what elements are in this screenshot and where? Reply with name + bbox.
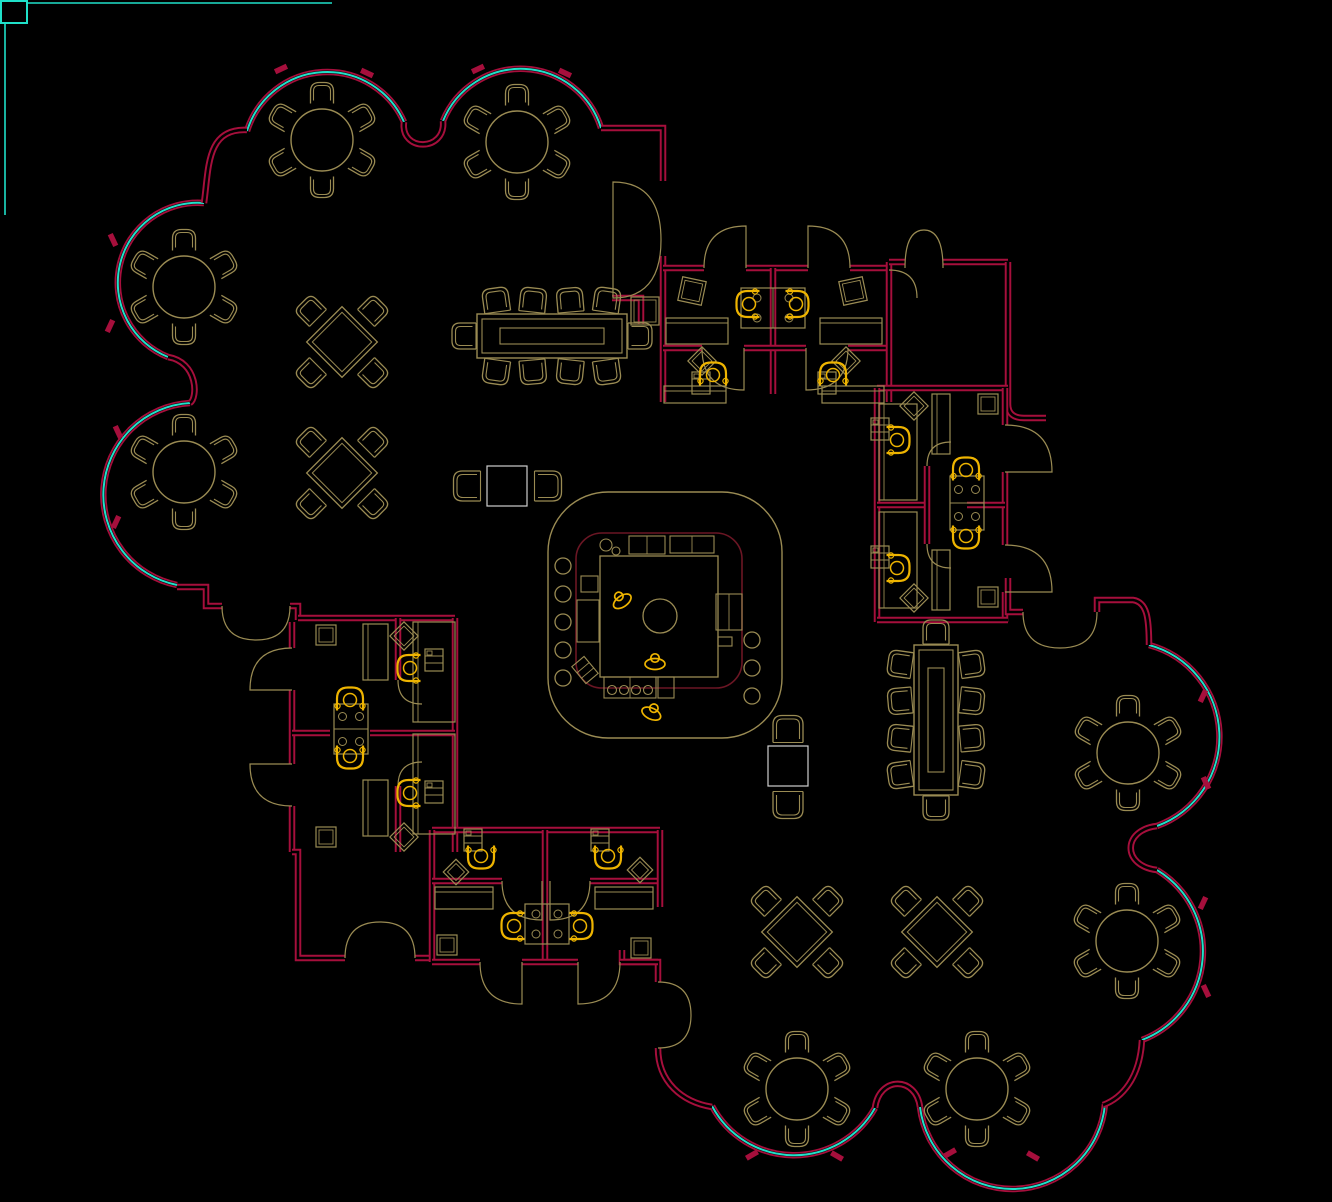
diamond-table-4[interactable] <box>263 263 421 421</box>
task-chair[interactable] <box>502 911 525 941</box>
dining-chair[interactable] <box>786 1032 809 1053</box>
door-swing[interactable] <box>658 1015 691 1048</box>
diamond-chair[interactable] <box>294 294 327 327</box>
dining-chair[interactable] <box>1153 949 1183 979</box>
glass-wall-arc[interactable] <box>1142 870 1203 1040</box>
task-chair[interactable] <box>951 526 981 549</box>
door-swing[interactable] <box>345 922 380 958</box>
door-swing[interactable] <box>905 230 924 268</box>
glass-wall-arc[interactable] <box>118 203 204 357</box>
dining-chair[interactable] <box>543 150 573 180</box>
lounge-chair[interactable] <box>773 792 803 819</box>
dining-chair[interactable] <box>1003 1050 1033 1080</box>
dining-chair[interactable] <box>1071 949 1101 979</box>
door-swing[interactable] <box>250 648 292 690</box>
conference-chair[interactable] <box>887 724 914 752</box>
conference-chair[interactable] <box>519 287 547 314</box>
round-table-6[interactable] <box>128 415 239 530</box>
task-chair[interactable] <box>570 911 593 941</box>
round-table-6[interactable] <box>921 1032 1032 1147</box>
task-chair[interactable] <box>737 289 760 319</box>
door-swing[interactable] <box>808 226 850 268</box>
desk[interactable] <box>932 550 950 610</box>
door-swing[interactable] <box>924 230 943 268</box>
mullion-tick <box>274 64 288 74</box>
wall-segment[interactable] <box>292 852 345 958</box>
round-table-6[interactable] <box>1071 884 1182 999</box>
mullion-tick <box>113 425 123 439</box>
mullion-tick <box>1026 1150 1040 1161</box>
counter-stool[interactable] <box>744 632 760 648</box>
mullion-tick <box>1198 689 1208 703</box>
file-cabinet[interactable] <box>425 781 443 803</box>
side-table[interactable] <box>631 938 651 958</box>
dining-chair[interactable] <box>128 295 158 325</box>
conference-chair[interactable] <box>481 358 510 385</box>
diamond-table-4[interactable] <box>718 853 876 1011</box>
dining-chair[interactable] <box>266 101 296 131</box>
lounge-table[interactable] <box>487 466 527 506</box>
desk[interactable] <box>413 622 455 722</box>
desk[interactable] <box>413 734 455 834</box>
workstation[interactable] <box>950 476 984 530</box>
dining-chair[interactable] <box>823 1050 853 1080</box>
side-table[interactable] <box>839 277 867 305</box>
kitchen-equipment <box>629 536 665 554</box>
dining-chair[interactable] <box>311 83 334 104</box>
person-figure <box>645 654 665 670</box>
diamond-chair[interactable] <box>813 948 846 981</box>
kitchen-outer-counter[interactable] <box>548 492 782 738</box>
side-table[interactable] <box>316 625 336 645</box>
diamond-chair[interactable] <box>889 948 922 981</box>
mullion-tick <box>105 319 115 333</box>
round-table-6[interactable] <box>461 85 572 200</box>
conference-chair[interactable] <box>519 359 547 385</box>
dining-chair[interactable] <box>173 509 196 530</box>
door-swing[interactable] <box>222 606 256 640</box>
dining-chair[interactable] <box>966 1126 989 1147</box>
kitchen-burner <box>612 547 620 555</box>
person-figure <box>608 587 633 611</box>
dining-chair[interactable] <box>741 1050 771 1080</box>
mullion-tick <box>830 1150 844 1161</box>
task-chair[interactable] <box>887 425 910 455</box>
glass-wall-arc[interactable] <box>443 69 601 128</box>
cad-viewport[interactable] <box>0 0 1332 1202</box>
dining-chair[interactable] <box>506 85 529 106</box>
frame-corner-square <box>1 1 27 23</box>
mullions-layer <box>105 64 1211 1162</box>
dining-chair[interactable] <box>210 480 240 510</box>
task-chair[interactable] <box>593 846 623 869</box>
side-table[interactable] <box>678 277 706 305</box>
diamond-chair[interactable] <box>294 489 327 522</box>
kitchen-burner <box>608 686 617 695</box>
dining-chair[interactable] <box>210 248 240 278</box>
door-swing[interactable] <box>613 240 661 298</box>
lounge-chair[interactable] <box>773 716 803 743</box>
kitchen-equipment <box>718 637 732 646</box>
diamond-chair[interactable] <box>813 884 846 917</box>
dining-chair[interactable] <box>966 1032 989 1053</box>
conference-chair[interactable] <box>959 724 985 752</box>
desk[interactable] <box>820 318 882 344</box>
kitchen-burner <box>600 539 612 551</box>
diamond-side-table[interactable] <box>900 392 928 420</box>
mullion-tick <box>1201 984 1211 998</box>
conference-chair[interactable] <box>628 323 652 349</box>
wall-segment[interactable] <box>658 1048 712 1107</box>
diamond-chair[interactable] <box>358 358 391 391</box>
wall-segment[interactable] <box>290 606 298 620</box>
counter-stool[interactable] <box>555 642 571 658</box>
mullion-tick <box>943 1147 957 1158</box>
wall-pocket[interactable] <box>1131 826 1157 870</box>
wall-segment[interactable] <box>1008 578 1023 612</box>
task-chair[interactable] <box>887 553 910 583</box>
kitchen-island <box>548 492 782 738</box>
file-cabinet[interactable] <box>425 649 443 671</box>
round-table-6[interactable] <box>741 1032 852 1147</box>
conference-chair[interactable] <box>959 687 986 715</box>
door-swing[interactable] <box>927 544 951 568</box>
wall-segment[interactable] <box>1097 600 1149 645</box>
lounge-table[interactable] <box>768 746 808 786</box>
dining-chair[interactable] <box>210 295 240 325</box>
wall-pocket[interactable] <box>875 1084 920 1108</box>
door-swing[interactable] <box>889 270 917 298</box>
dining-chair[interactable] <box>461 103 491 133</box>
kitchen-burner <box>620 686 629 695</box>
conference-chair[interactable] <box>886 760 913 789</box>
mullion-tick <box>471 64 485 74</box>
wall-segment[interactable] <box>177 587 222 606</box>
diamond-chair[interactable] <box>953 884 986 917</box>
task-chair[interactable] <box>466 846 496 869</box>
mullion-tick <box>111 515 121 529</box>
task-chair[interactable] <box>335 746 365 769</box>
round-table-6[interactable] <box>266 83 377 198</box>
person-figure <box>640 700 665 723</box>
round-table-6[interactable] <box>128 230 239 345</box>
wall-segment[interactable] <box>1008 262 1046 418</box>
desk[interactable] <box>932 394 950 454</box>
workstation[interactable] <box>525 904 569 944</box>
mullion-tick <box>1198 896 1208 910</box>
conference-chair[interactable] <box>923 620 949 644</box>
wall-pocket[interactable] <box>404 121 443 144</box>
diamond-chair[interactable] <box>294 358 327 391</box>
kitchen-equipment <box>577 600 599 642</box>
desk[interactable] <box>363 624 388 680</box>
conference-chair[interactable] <box>556 287 584 313</box>
dining-chair[interactable] <box>1117 696 1140 717</box>
desk[interactable] <box>595 887 653 909</box>
side-table[interactable] <box>316 827 336 847</box>
dining-chair[interactable] <box>173 415 196 436</box>
conference-chair[interactable] <box>958 649 985 678</box>
conference-table-10[interactable] <box>886 620 985 820</box>
glass-wall-arc[interactable] <box>1149 645 1219 826</box>
door-swing[interactable] <box>704 226 746 268</box>
dining-chair[interactable] <box>921 1050 951 1080</box>
dining-chair[interactable] <box>1071 902 1101 932</box>
door-swing[interactable] <box>1023 612 1060 648</box>
wall-segment[interactable] <box>204 130 247 203</box>
dining-chair[interactable] <box>173 230 196 251</box>
door-swing[interactable] <box>613 182 661 240</box>
round-table-6[interactable] <box>1072 696 1183 811</box>
dining-chair[interactable] <box>266 148 296 178</box>
workstation[interactable] <box>741 288 805 328</box>
wall-pocket[interactable] <box>168 357 195 403</box>
dining-chair[interactable] <box>348 101 378 131</box>
glass-wall-arc[interactable] <box>920 1104 1105 1189</box>
diamond-table-4[interactable] <box>263 394 421 552</box>
dining-chair[interactable] <box>1116 884 1139 905</box>
diamond-chair[interactable] <box>749 948 782 981</box>
dining-chair[interactable] <box>741 1097 771 1127</box>
kitchen-equipment <box>716 594 742 630</box>
kitchen-burner <box>632 686 641 695</box>
dining-chair[interactable] <box>823 1097 853 1127</box>
dining-chair[interactable] <box>128 433 158 463</box>
dining-chair[interactable] <box>461 150 491 180</box>
dining-chair[interactable] <box>1154 714 1184 744</box>
diamond-side-table[interactable] <box>390 622 418 650</box>
conference-chair[interactable] <box>887 687 913 715</box>
counter-stool[interactable] <box>555 586 571 602</box>
counter-stool[interactable] <box>555 670 571 686</box>
diamond-chair[interactable] <box>953 948 986 981</box>
dining-chair[interactable] <box>173 324 196 345</box>
kitchen-burner <box>644 686 653 695</box>
glass-wall-arc[interactable] <box>712 1106 875 1155</box>
conference-chair[interactable] <box>886 649 913 678</box>
counter-stool[interactable] <box>555 614 571 630</box>
counter-stool[interactable] <box>744 688 760 704</box>
diamond-side-table[interactable] <box>390 823 418 851</box>
dining-chair[interactable] <box>1072 714 1102 744</box>
diamond-chair[interactable] <box>358 425 391 458</box>
conference-chair[interactable] <box>958 760 985 789</box>
dining-chair[interactable] <box>128 480 158 510</box>
diamond-chair[interactable] <box>749 884 782 917</box>
diamond-chair[interactable] <box>294 425 327 458</box>
dining-chair[interactable] <box>128 248 158 278</box>
dining-chair[interactable] <box>210 433 240 463</box>
diamond-table-4[interactable] <box>858 853 1016 1011</box>
dining-chair[interactable] <box>543 103 573 133</box>
mullion-tick <box>108 233 118 247</box>
conference-chair[interactable] <box>556 359 584 386</box>
kitchen-equipment <box>670 536 714 553</box>
lounge-chair[interactable] <box>454 471 481 501</box>
dining-chair[interactable] <box>1153 902 1183 932</box>
conference-chair[interactable] <box>592 358 621 385</box>
dining-chair[interactable] <box>1072 761 1102 791</box>
mullion-tick <box>745 1149 759 1160</box>
furniture-layer <box>128 83 1183 1147</box>
dining-chair[interactable] <box>506 179 529 200</box>
task-chair[interactable] <box>951 458 981 481</box>
side-table[interactable] <box>978 394 998 414</box>
side-table[interactable] <box>437 935 457 955</box>
dining-chair[interactable] <box>311 177 334 198</box>
task-chair[interactable] <box>335 688 365 711</box>
conference-chair[interactable] <box>481 286 510 313</box>
dining-chair[interactable] <box>1154 761 1184 791</box>
door-swing[interactable] <box>1005 545 1052 592</box>
lounge-chair[interactable] <box>535 471 562 501</box>
desk[interactable] <box>666 318 728 344</box>
door-swing[interactable] <box>256 606 290 640</box>
door-swing[interactable] <box>380 922 415 958</box>
dining-chair[interactable] <box>1117 790 1140 811</box>
counter-stool[interactable] <box>744 660 760 676</box>
conference-chair[interactable] <box>923 796 949 820</box>
door-swing[interactable] <box>1060 612 1097 648</box>
side-table[interactable] <box>978 587 998 607</box>
wall-segment[interactable] <box>601 128 663 181</box>
dining-chair[interactable] <box>1003 1097 1033 1127</box>
walls-layer <box>177 128 1149 1107</box>
door-swing[interactable] <box>578 962 620 1004</box>
dining-chair[interactable] <box>786 1126 809 1147</box>
door-swing[interactable] <box>480 962 522 1004</box>
conference-chair[interactable] <box>452 323 476 349</box>
door-swing[interactable] <box>806 348 848 390</box>
floor-plan-canvas[interactable] <box>0 0 1332 1202</box>
desk[interactable] <box>363 780 388 836</box>
counter-stool[interactable] <box>555 558 571 574</box>
diamond-chair[interactable] <box>358 489 391 522</box>
diamond-chair[interactable] <box>358 294 391 327</box>
dining-chair[interactable] <box>1116 978 1139 999</box>
wall-segment[interactable] <box>1103 1040 1142 1105</box>
kitchen-equipment <box>581 576 598 592</box>
door-swing[interactable] <box>658 982 691 1015</box>
diamond-chair[interactable] <box>889 884 922 917</box>
desk[interactable] <box>435 887 493 909</box>
door-swing[interactable] <box>1005 425 1052 472</box>
dining-chair[interactable] <box>348 148 378 178</box>
door-swing[interactable] <box>250 764 292 806</box>
